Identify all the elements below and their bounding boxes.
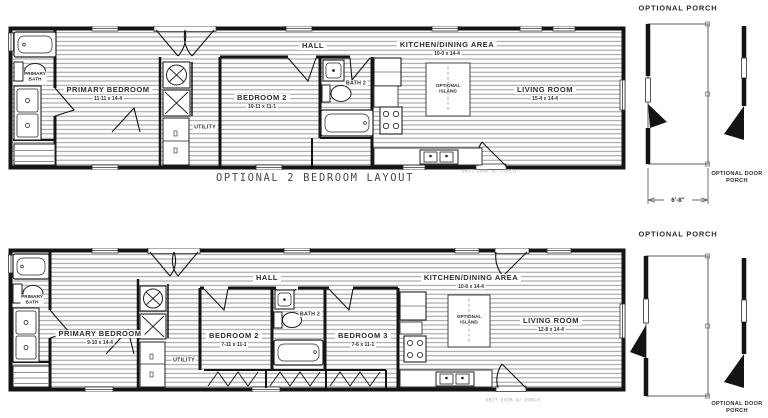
refrigerator-icon: [374, 58, 401, 86]
bath2-tub-icon: [274, 340, 323, 365]
washer-icon: [140, 286, 166, 311]
room-label-utility: UTILITY: [172, 357, 196, 363]
bath2-toilet-icon: [322, 85, 351, 102]
porch-outline: [648, 22, 710, 166]
range-icon: [404, 336, 426, 362]
floorplan-bottom: HALL KITCHEN/DINING AREA 10-0 x 14-4 PRI…: [8, 248, 626, 392]
room-dim-primary-bedroom: 11-11 x 14-4: [93, 96, 124, 101]
range-icon: [380, 107, 402, 134]
counter-icon: [400, 322, 422, 334]
room-label-utility: UTILITY: [193, 124, 217, 130]
unit-note-bottom: OMIT DOOR W/ PORCH: [486, 398, 540, 403]
room-label-bedroom2: BEDROOM 2: [234, 94, 290, 102]
closet-shelves-icon: [13, 366, 49, 387]
room-dim-living-room: 12-8 x 14-4: [537, 327, 566, 332]
room-label-primary-bath: PRIMARY BATH: [20, 295, 43, 306]
island-label: OPTIONAL ISLAND: [436, 84, 460, 95]
closet-shelves-icon: [14, 144, 55, 165]
room-dim-kitchen: 10-0 x 14-4: [457, 284, 486, 289]
vanity-sinks-icon: [14, 86, 41, 140]
counter-icon: [374, 86, 398, 107]
door-porch-icon: [724, 258, 747, 388]
kitchen-sink-icon: [400, 370, 492, 387]
door-leaf: [646, 78, 651, 102]
door-porch-icon: [724, 26, 747, 140]
room-dim-living-room: 15-4 x 14-4: [531, 96, 560, 101]
refrigerator-icon: [400, 292, 426, 320]
unit-note-top: OMIT DOOR W/ PORCH: [462, 169, 516, 174]
bath2-toilet-icon: [274, 312, 302, 328]
floor-plan-sheet: HALL KITCHEN/DINING AREA 10-0 x 14-4 PRI…: [0, 0, 768, 418]
utility-cabinet-icon: [163, 118, 189, 165]
room-label-bath2: BATH 2: [299, 311, 322, 317]
door-swing-icon: [630, 325, 646, 358]
room-dim-primary-bedroom: 9-10 x 14-4: [86, 340, 115, 345]
room-label-kitchen: KITCHEN/DINING AREA: [421, 274, 521, 282]
room-dim-bedroom2: 10-11 x 11-1: [247, 104, 278, 109]
room-label-primary-bedroom: PRIMARY BEDROOM: [56, 330, 145, 338]
floorplan-top: HALL KITCHEN/DINING AREA 10-0 x 14-4 PRI…: [8, 26, 626, 170]
porch-top-diagram: [634, 16, 766, 216]
bath2-tub-icon: [321, 110, 373, 136]
door-porch-bottom-label: OPTIONAL DOOR PORCH: [709, 401, 765, 415]
island-label: OPTIONAL ISLAND: [457, 315, 481, 326]
room-label-hall: HALL: [299, 42, 327, 50]
room-label-bedroom2: BEDROOM 2: [206, 332, 262, 340]
room-dim-bedroom2: 7-11 x 11-1: [220, 342, 248, 347]
bathtub-icon: [14, 32, 56, 57]
room-label-living-room: LIVING ROOM: [514, 86, 576, 94]
bath2-sink-icon: [275, 290, 294, 309]
utility-cabinet-icon: [140, 342, 165, 387]
room-label-primary-bedroom: PRIMARY BEDROOM: [64, 86, 153, 94]
room-dim-kitchen: 10-0 x 14-4: [433, 51, 462, 56]
bathtub-icon: [13, 254, 49, 279]
porch-outline: [646, 254, 710, 398]
room-label-kitchen: KITCHEN/DINING AREA: [397, 41, 497, 49]
room-label-living-room: LIVING ROOM: [520, 317, 582, 325]
vanity-sinks-icon: [13, 308, 39, 362]
kitchen-sink-icon: [374, 148, 482, 165]
bath2-sink-icon: [323, 60, 344, 81]
end-wall: [630, 256, 649, 396]
room-label-primary-bath: PRIMARY BATH: [23, 72, 46, 83]
room-label-bath2: BATH 2: [345, 80, 368, 86]
porch-bottom-diagram: [630, 244, 768, 416]
porch-bottom-title: OPTIONAL PORCH: [639, 230, 718, 239]
room-dim-bedroom3: 7-6 x 11-1: [350, 342, 376, 347]
plan-caption: OPTIONAL 2 BEDROOM LAYOUT: [216, 172, 414, 184]
room-label-bedroom3: BEDROOM 3: [335, 332, 391, 340]
door-leaf: [644, 299, 649, 323]
room-label-hall: HALL: [253, 274, 281, 282]
dryer-icon: [163, 90, 190, 116]
door-porch-top-label: OPTIONAL DOOR PORCH: [709, 171, 765, 185]
porch-width-dim: 6'-8": [669, 196, 687, 203]
porch-top-title: OPTIONAL PORCH: [639, 4, 718, 13]
washer-icon: [163, 62, 190, 88]
